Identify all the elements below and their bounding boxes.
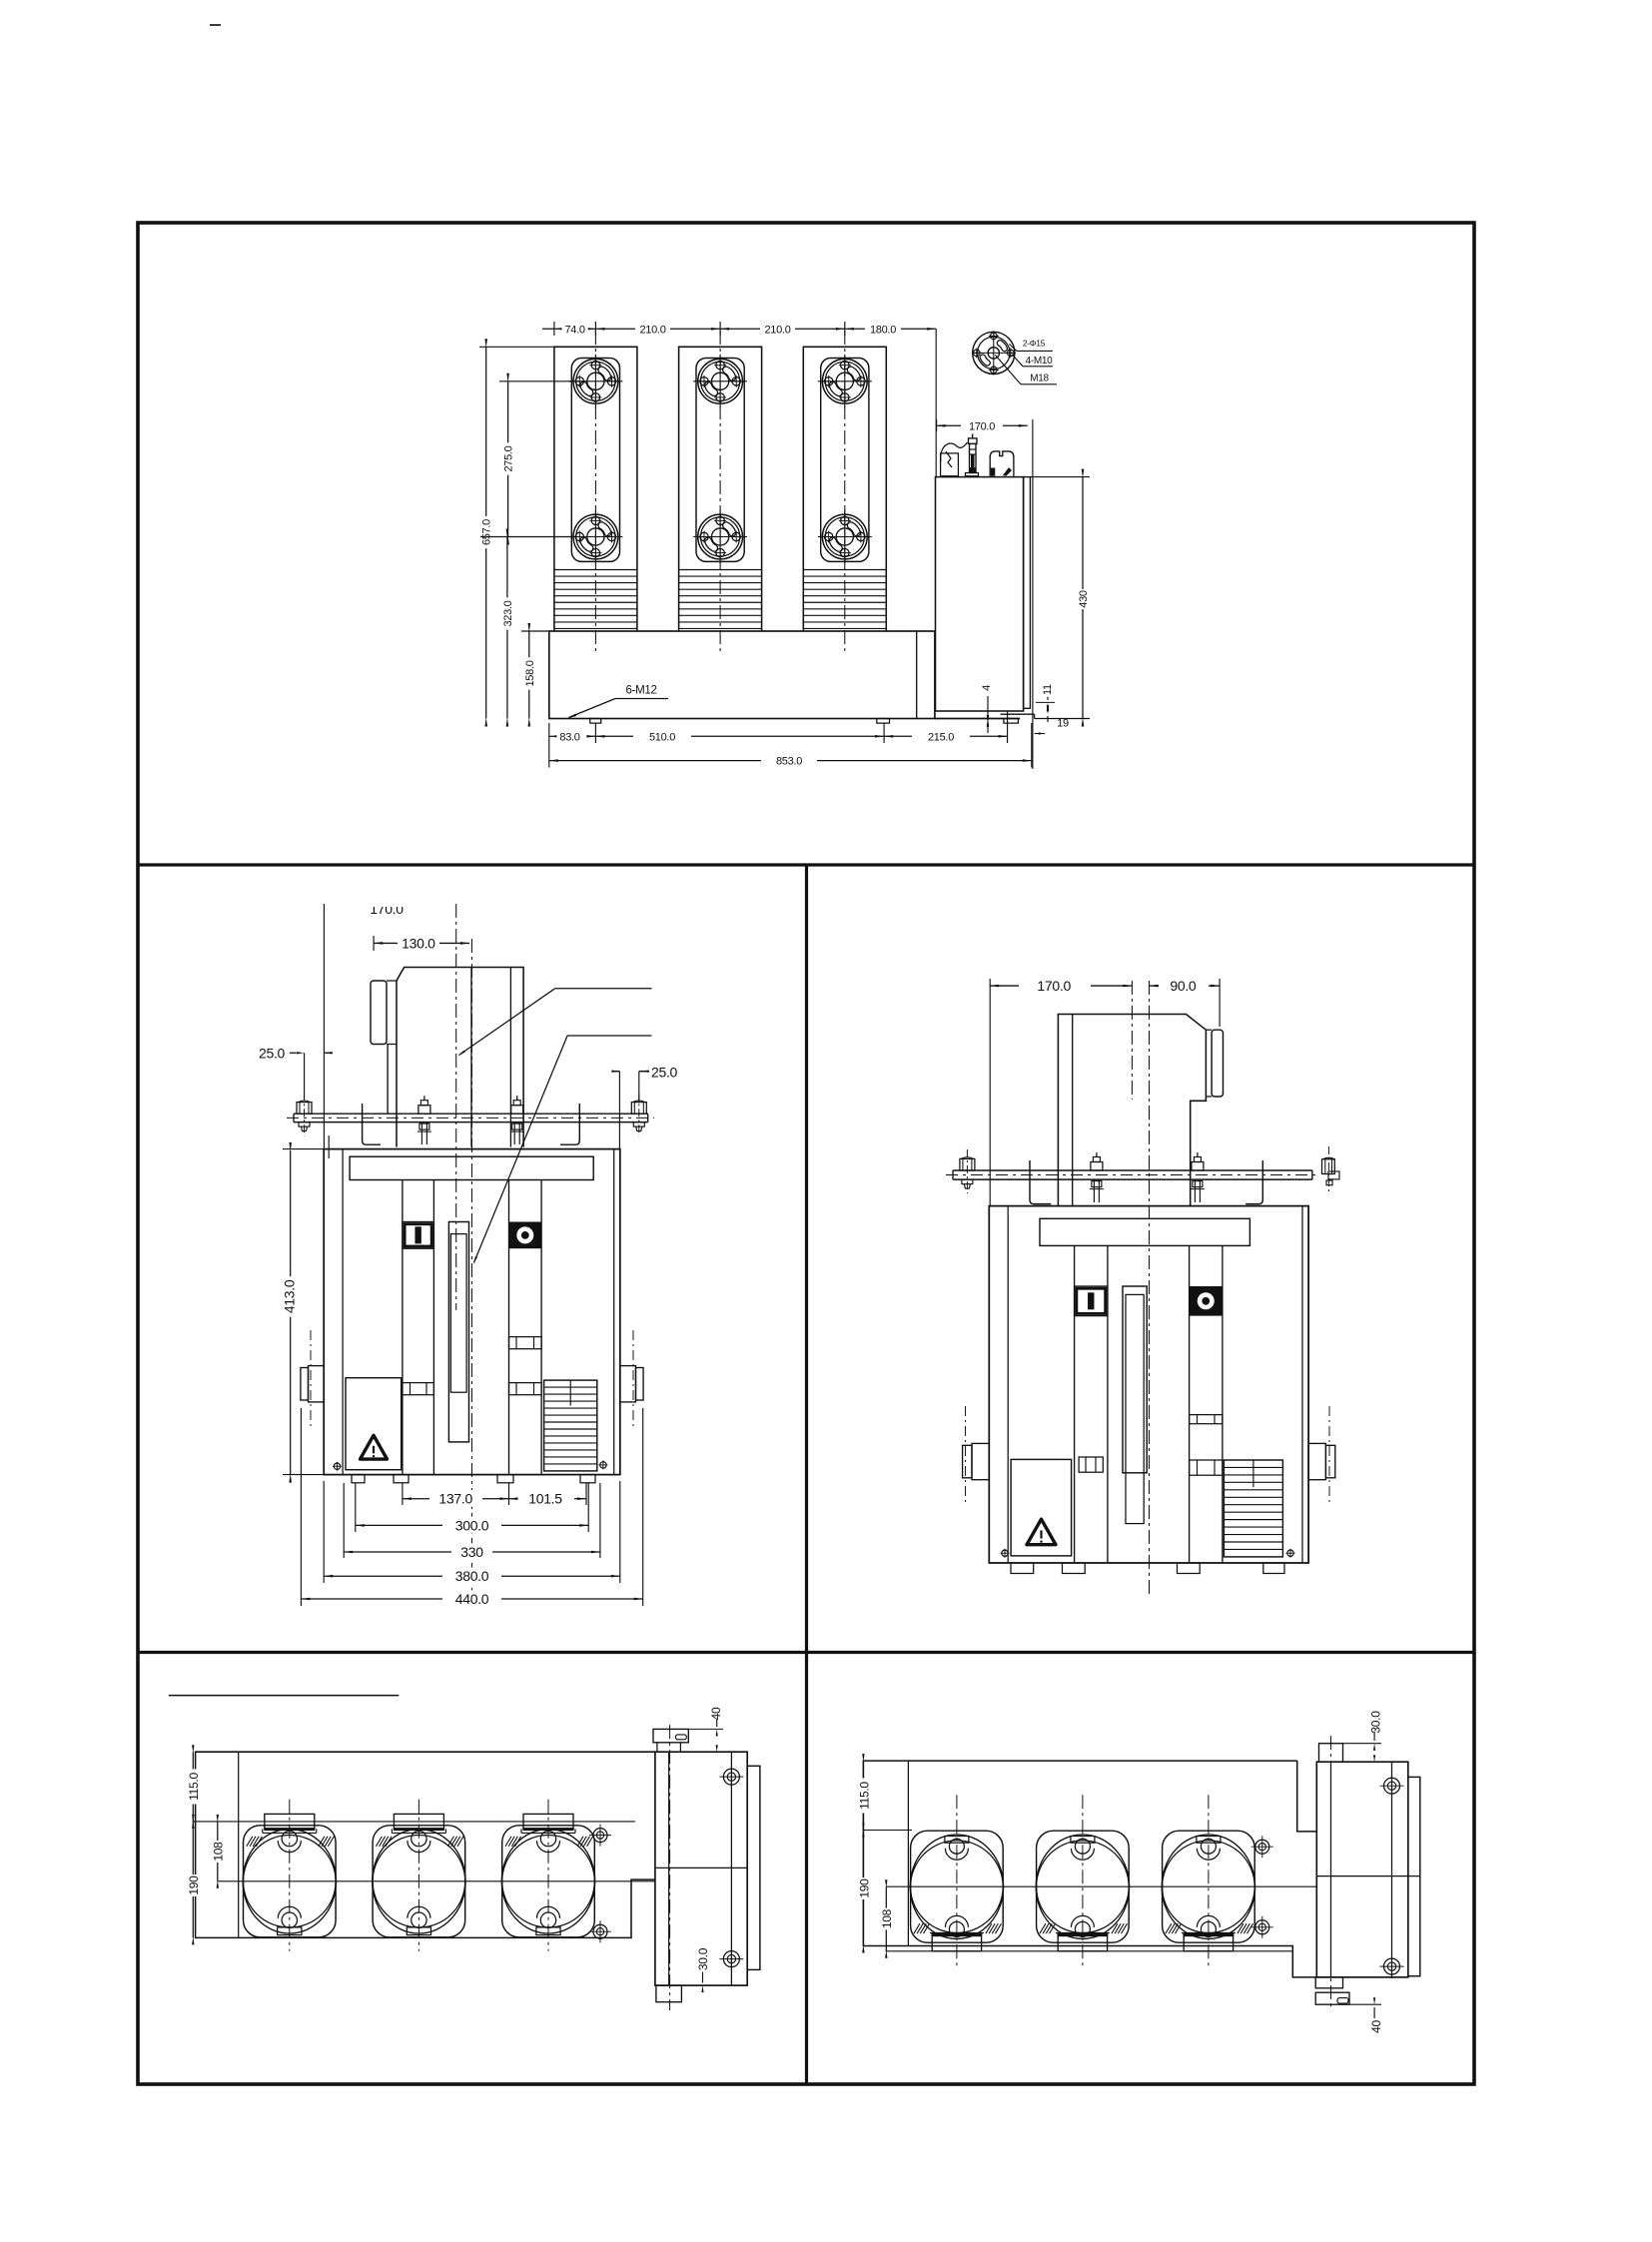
svg-text:380.0: 380.0 — [455, 1568, 489, 1584]
svg-text:210.0: 210.0 — [639, 324, 665, 336]
svg-text:6-M12: 6-M12 — [625, 685, 656, 697]
svg-text:2-Φ15: 2-Φ15 — [1023, 339, 1046, 349]
svg-text:11: 11 — [1042, 684, 1054, 695]
svg-text:74.0: 74.0 — [564, 324, 584, 336]
svg-text:108: 108 — [212, 1842, 226, 1862]
svg-text:190: 190 — [187, 1875, 201, 1895]
svg-text:30.0: 30.0 — [696, 1947, 710, 1970]
svg-text:510.0: 510.0 — [649, 731, 675, 743]
svg-text:40: 40 — [1369, 2020, 1383, 2033]
svg-text:137.0: 137.0 — [438, 1491, 472, 1507]
svg-text:101.5: 101.5 — [528, 1491, 562, 1507]
svg-text:158.0: 158.0 — [524, 660, 536, 686]
svg-text:115.0: 115.0 — [187, 1773, 201, 1801]
svg-text:853.0: 853.0 — [776, 756, 802, 768]
svg-text:40: 40 — [709, 1707, 723, 1720]
svg-text:330: 330 — [460, 1544, 483, 1560]
svg-text:90.0: 90.0 — [1170, 978, 1197, 994]
svg-text:215.0: 215.0 — [928, 731, 954, 743]
svg-text:210.0: 210.0 — [764, 324, 790, 336]
svg-text:108: 108 — [880, 1908, 894, 1928]
svg-text:19: 19 — [1057, 717, 1069, 729]
svg-text:115.0: 115.0 — [857, 1782, 871, 1810]
svg-text:180.0: 180.0 — [870, 324, 896, 336]
svg-text:275.0: 275.0 — [503, 445, 515, 471]
svg-text:657.0: 657.0 — [481, 519, 493, 545]
svg-text:25.0: 25.0 — [651, 1064, 678, 1080]
svg-text:30.0: 30.0 — [1369, 1711, 1383, 1734]
svg-text:130.0: 130.0 — [402, 935, 435, 951]
svg-text:4: 4 — [981, 685, 993, 691]
svg-text:440.0: 440.0 — [455, 1591, 489, 1607]
svg-text:170.0: 170.0 — [1037, 978, 1071, 994]
svg-text:83.0: 83.0 — [559, 731, 579, 743]
svg-text:4-M10: 4-M10 — [1026, 356, 1054, 367]
svg-text:170.0: 170.0 — [969, 420, 995, 432]
svg-text:25.0: 25.0 — [259, 1045, 286, 1061]
svg-text:413.0: 413.0 — [281, 1279, 297, 1313]
svg-text:300.0: 300.0 — [455, 1517, 489, 1533]
svg-text:430: 430 — [1078, 590, 1090, 608]
svg-text:M18: M18 — [1030, 374, 1049, 384]
svg-text:190: 190 — [857, 1878, 871, 1898]
svg-text:323.0: 323.0 — [502, 600, 514, 626]
